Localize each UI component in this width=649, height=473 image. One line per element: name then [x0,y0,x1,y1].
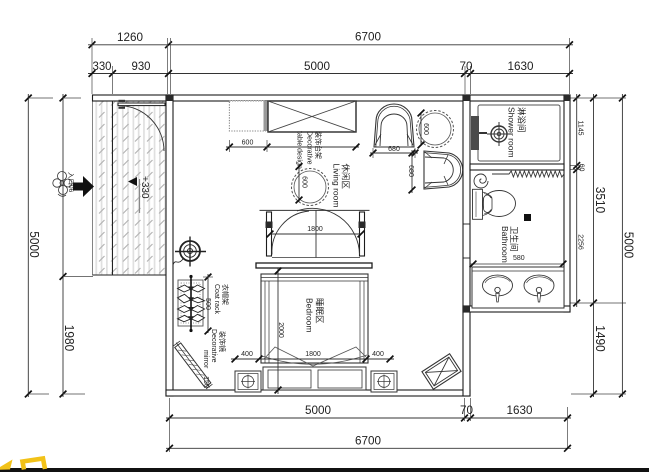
svg-text:580: 580 [513,255,525,262]
svg-text:5000: 5000 [27,231,42,258]
svg-text:150: 150 [202,376,209,388]
svg-text:2256: 2256 [577,234,584,250]
svg-text:400: 400 [372,351,384,358]
svg-text:1630: 1630 [507,403,533,417]
svg-text:mirror: mirror [202,350,209,369]
svg-text:600: 600 [301,176,308,188]
svg-text:60: 60 [578,164,585,172]
svg-text:680: 680 [388,146,400,153]
svg-text:930: 930 [132,59,151,73]
svg-text:70: 70 [460,59,473,73]
svg-text:Shower room: Shower room [507,107,517,158]
svg-text:1260: 1260 [117,30,143,44]
svg-text:1630: 1630 [508,59,534,73]
svg-text:Bathroom: Bathroom [500,226,510,263]
svg-text:6700: 6700 [355,30,381,44]
svg-text:330: 330 [93,59,112,73]
svg-text:装饰镜: 装饰镜 [218,331,227,352]
svg-text:Decorative: Decorative [306,131,313,165]
svg-text:5000: 5000 [622,232,637,259]
svg-text:Coat rack: Coat rack [213,284,220,314]
svg-text:+330: +330 [139,176,150,199]
svg-text:2000: 2000 [277,322,284,338]
svg-text:淋浴间: 淋浴间 [517,107,527,133]
svg-text:6700: 6700 [355,434,381,448]
svg-text:680: 680 [407,165,414,177]
svg-text:1800: 1800 [307,226,323,233]
svg-text:600: 600 [422,123,429,135]
svg-text:1145: 1145 [577,120,584,135]
svg-text:Decorative: Decorative [210,329,217,363]
svg-text:装饰台架: 装饰台架 [314,131,323,159]
svg-text:入口06: 入口06 [67,172,75,193]
svg-text:5000: 5000 [304,59,330,73]
svg-text:Bedroom: Bedroom [305,298,315,333]
svg-text:600: 600 [242,140,254,147]
svg-text:5000: 5000 [305,403,331,417]
svg-text:3510: 3510 [593,187,608,214]
svg-text:衣帽架: 衣帽架 [221,284,230,305]
svg-text:400: 400 [241,351,253,358]
svg-text:1490: 1490 [593,325,608,352]
svg-text:睡眠区: 睡眠区 [315,298,325,324]
svg-text:500: 500 [204,298,211,310]
svg-text:70: 70 [460,403,473,417]
svg-text:1980: 1980 [62,325,77,352]
svg-text:1800: 1800 [305,351,321,358]
svg-text:Living room: Living room [332,164,342,208]
